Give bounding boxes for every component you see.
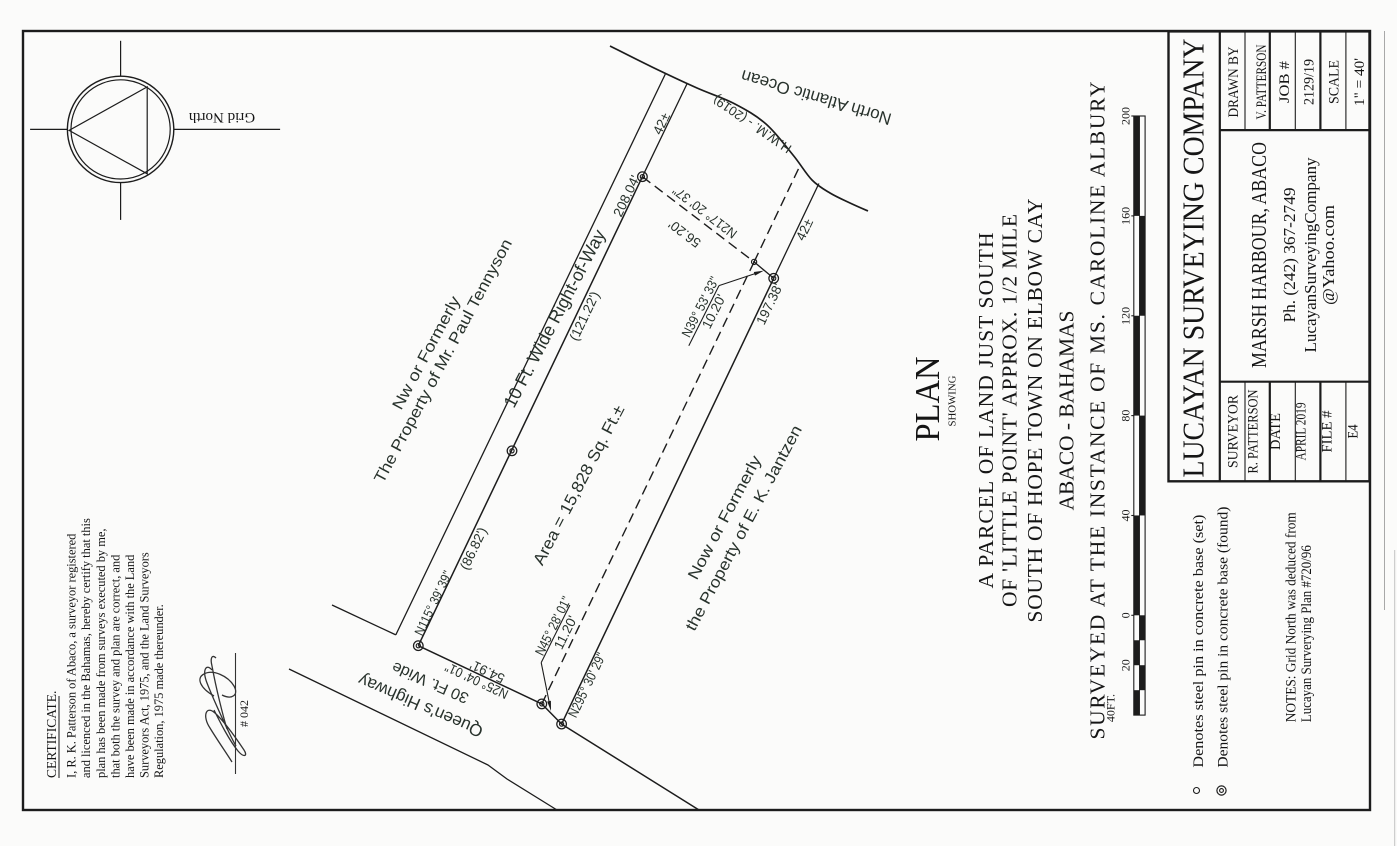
svg-text:that both the survey and plan: that both the survey and plan are correc…	[108, 554, 122, 778]
svg-text:@Yahoo.com: @Yahoo.com	[1319, 205, 1338, 305]
svg-text:Ph. (242) 367-2749: Ph. (242) 367-2749	[1280, 188, 1299, 323]
svg-text:20: 20	[1119, 659, 1133, 671]
svg-text:LucayanSurveyingCompany: LucayanSurveyingCompany	[1301, 157, 1320, 352]
svg-text:Denotes steel pin in concrete: Denotes steel pin in concrete base (set)	[1191, 514, 1207, 767]
svg-text:Regulation, 1975 made thereund: Regulation, 1975 made thereunder.	[152, 604, 166, 778]
svg-text:OF 'LITTLE POINT' APPROX. 1/2: OF 'LITTLE POINT' APPROX. 1/2 MILE	[998, 214, 1022, 607]
svg-text:and licenced in the Bahamas, h: and licenced in the Bahamas, hereby cert…	[79, 518, 93, 778]
svg-text:plan has been made from survey: plan has been made from surveys executed…	[94, 529, 108, 778]
svg-text:120: 120	[1119, 307, 1133, 325]
svg-text:V. PATTERSON: V. PATTERSON	[1254, 44, 1270, 119]
svg-text:80: 80	[1119, 410, 1133, 422]
svg-text:SCALE: SCALE	[1327, 60, 1343, 104]
svg-text:E4: E4	[1346, 424, 1362, 438]
svg-text:160: 160	[1119, 207, 1133, 225]
svg-text:R. PATTERSON: R. PATTERSON	[1246, 389, 1262, 473]
svg-text:JOB #: JOB #	[1277, 60, 1293, 103]
svg-text:FILE #: FILE #	[1320, 410, 1336, 452]
svg-text:SURVEYOR: SURVEYOR	[1226, 395, 1242, 468]
svg-text:SOUTH OF HOPE TOWN ON ELBOW CA: SOUTH OF HOPE TOWN ON ELBOW CAY	[1023, 199, 1047, 623]
svg-text:A PARCEL OF LAND JUST SOUTH: A PARCEL OF LAND JUST SOUTH	[974, 233, 998, 589]
svg-text:NOTES: Grid North was deduced: NOTES: Grid North was deduced from	[1284, 512, 1300, 722]
svg-text:0: 0	[1119, 612, 1133, 618]
svg-text:I, R. K. Patterson of Abaco, a: I, R. K. Patterson of Abaco, a surveyor …	[65, 533, 79, 778]
svg-text:200: 200	[1119, 107, 1133, 125]
svg-text:PLAN: PLAN	[908, 357, 947, 442]
svg-text:1" = 40': 1" = 40'	[1352, 58, 1368, 106]
svg-text:have been made in accordance w: have been made in accordance with the La…	[123, 554, 137, 778]
svg-text:Denotes steel pin in concrete: Denotes steel pin in concrete base (foun…	[1216, 506, 1232, 767]
svg-text:DRAWN BY: DRAWN BY	[1226, 46, 1242, 117]
svg-text:Surveyors Act, 1975, and the L: Surveyors Act, 1975, and the Land Survey…	[138, 552, 152, 778]
svg-text:DATE: DATE	[1268, 413, 1284, 450]
svg-text:Lucayan Surverying Plan #720/9: Lucayan Surverying Plan #720/96	[1299, 545, 1315, 722]
svg-text:Grid North: Grid North	[188, 109, 255, 125]
svg-text:40FT.: 40FT.	[1104, 694, 1118, 722]
svg-text:CERTIFICATE.: CERTIFICATE.	[44, 691, 59, 778]
svg-text:# 042: # 042	[237, 700, 251, 727]
svg-text:MARSH HARBOUR, ABACO: MARSH HARBOUR, ABACO	[1247, 142, 1271, 368]
svg-text:40: 40	[1119, 510, 1133, 522]
svg-text:ABACO - BAHAMAS: ABACO - BAHAMAS	[1055, 311, 1079, 511]
svg-text:APRIL 2019: APRIL 2019	[1294, 403, 1310, 461]
svg-text:LUCAYAN SURVEYING COMPANY: LUCAYAN SURVEYING COMPANY	[1176, 39, 1211, 478]
svg-text:SURVEYED AT THE INSTANCE OF MS: SURVEYED AT THE INSTANCE OF MS. CAROLINE…	[1086, 82, 1110, 740]
svg-text:SHOWING: SHOWING	[947, 375, 959, 426]
svg-text:2129/19: 2129/19	[1302, 59, 1318, 105]
